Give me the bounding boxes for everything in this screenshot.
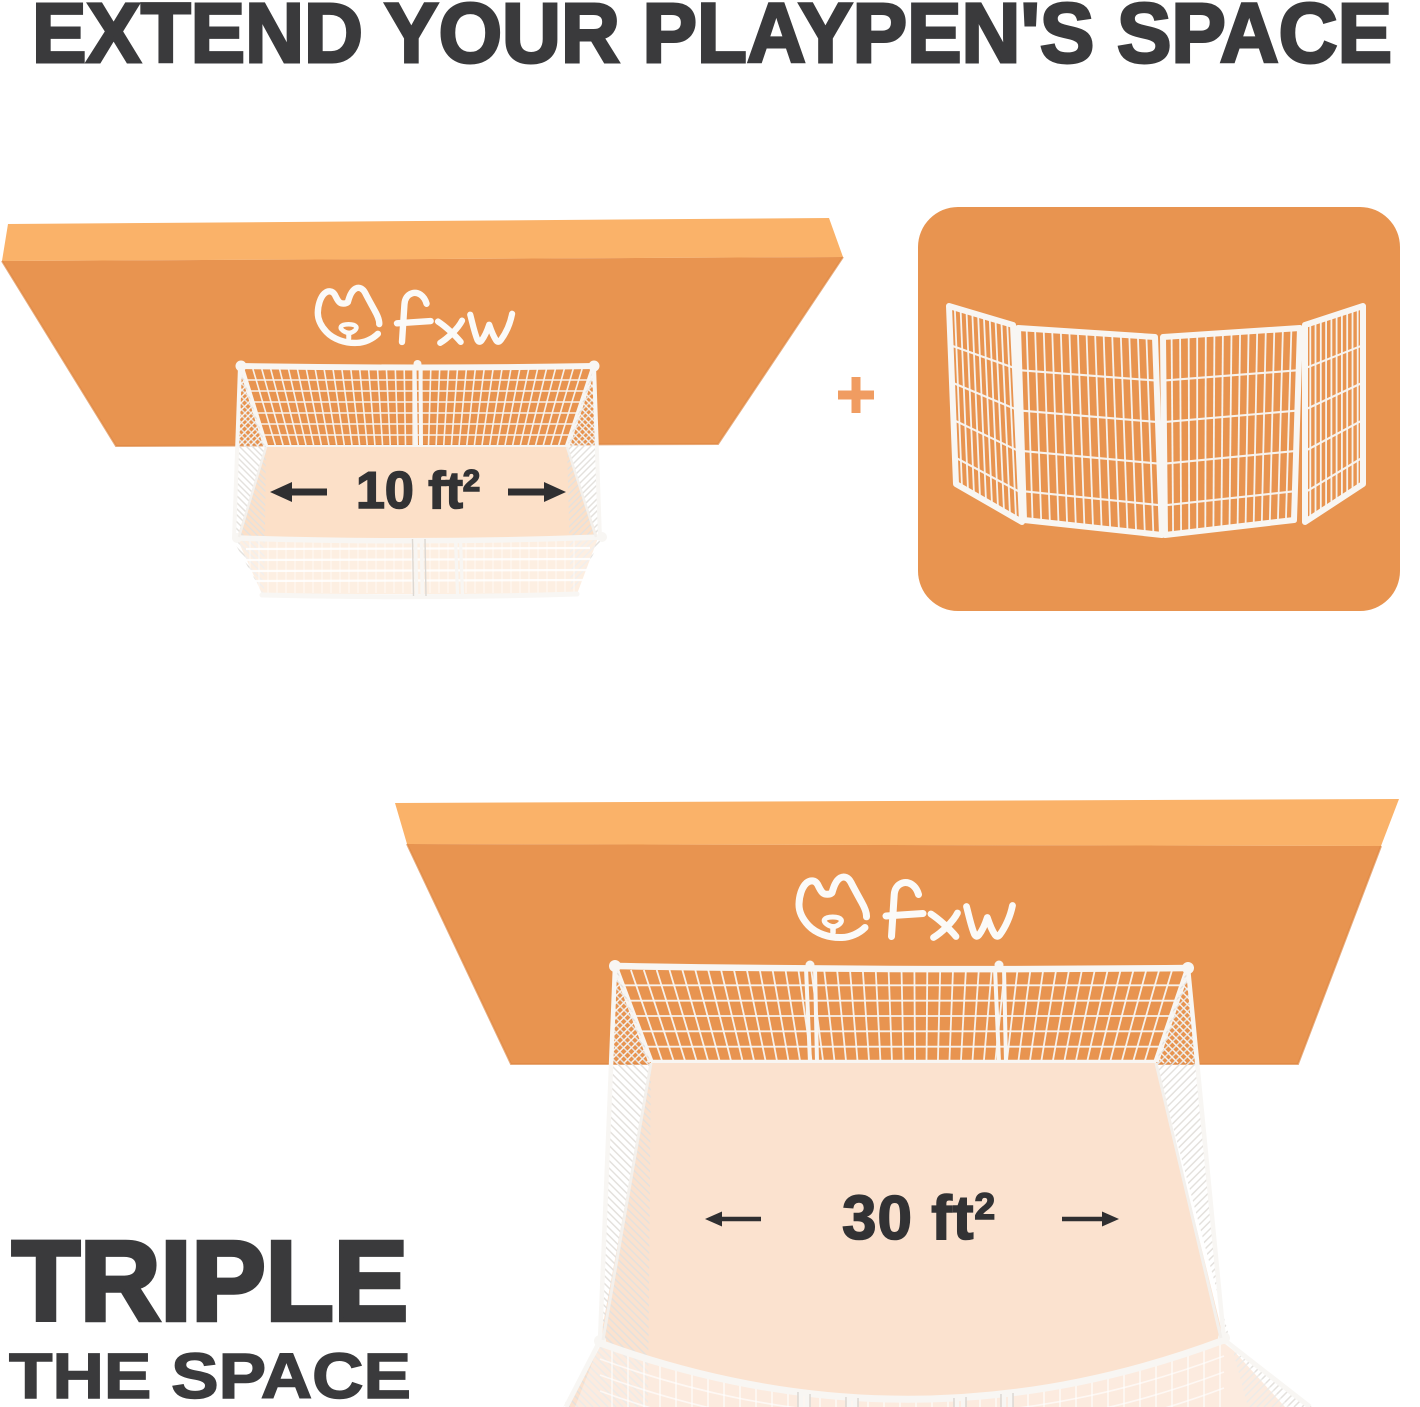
- svg-text:TRIPLE: TRIPLE: [12, 1218, 408, 1344]
- svg-text:EXTEND YOUR PLAYPEN'S SPACE: EXTEND YOUR PLAYPEN'S SPACE: [32, 0, 1392, 80]
- svg-text:30 ft2: 30 ft2: [842, 1184, 996, 1253]
- svg-text:THE SPACE: THE SPACE: [9, 1340, 411, 1407]
- svg-text:10 ft2: 10 ft2: [356, 462, 480, 520]
